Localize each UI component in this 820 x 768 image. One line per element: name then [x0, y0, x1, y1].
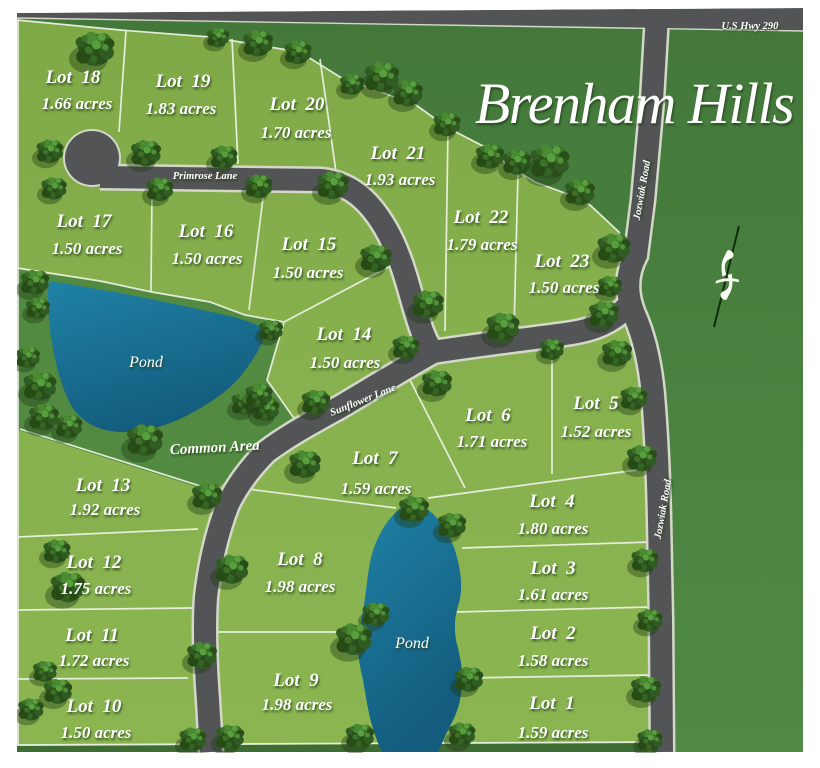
svg-text:U.S Hwy 290: U.S Hwy 290: [722, 21, 780, 32]
svg-text:Lot 3: Lot 3: [529, 558, 575, 579]
svg-text:1.71 acres: 1.71 acres: [457, 432, 528, 451]
svg-text:Lot 14: Lot 14: [316, 324, 372, 345]
svg-text:Lot 10: Lot 10: [66, 696, 122, 717]
svg-text:1.59 acres: 1.59 acres: [341, 479, 412, 498]
svg-text:Lot 16: Lot 16: [178, 221, 234, 242]
svg-text:Lot 7: Lot 7: [351, 448, 399, 469]
svg-text:1.83 acres: 1.83 acres: [146, 99, 217, 118]
svg-text:Pond: Pond: [128, 354, 164, 371]
svg-text:Lot 21: Lot 21: [370, 143, 426, 164]
svg-text:Lot 9: Lot 9: [272, 670, 319, 691]
svg-text:1.75 acres: 1.75 acres: [61, 579, 132, 598]
svg-text:Lot 1: Lot 1: [528, 693, 574, 714]
svg-text:Lot 22: Lot 22: [453, 207, 509, 228]
svg-text:Primrose Lane: Primrose Lane: [173, 171, 238, 182]
svg-text:1.61 acres: 1.61 acres: [518, 585, 589, 604]
svg-text:1.50 acres: 1.50 acres: [273, 263, 344, 282]
svg-text:1.58 acres: 1.58 acres: [518, 651, 589, 670]
svg-text:1.50 acres: 1.50 acres: [52, 239, 123, 258]
svg-text:Lot 13: Lot 13: [75, 475, 131, 496]
svg-text:1.70 acres: 1.70 acres: [261, 123, 332, 142]
svg-text:Lot 19: Lot 19: [155, 71, 211, 92]
svg-text:Lot 17: Lot 17: [56, 211, 113, 232]
svg-text:1.92 acres: 1.92 acres: [70, 500, 141, 519]
svg-text:1.50 acres: 1.50 acres: [172, 249, 243, 268]
svg-text:Lot 15: Lot 15: [281, 234, 337, 255]
svg-text:Lot 4: Lot 4: [528, 491, 574, 512]
svg-text:1.50 acres: 1.50 acres: [61, 723, 132, 742]
svg-text:Lot 12: Lot 12: [66, 552, 122, 573]
svg-text:Brenham Hills: Brenham Hills: [475, 71, 793, 136]
svg-text:Lot 23: Lot 23: [534, 251, 590, 272]
svg-text:1.80 acres: 1.80 acres: [518, 519, 589, 538]
svg-text:1.79 acres: 1.79 acres: [447, 235, 518, 254]
svg-text:1.72 acres: 1.72 acres: [59, 651, 130, 670]
svg-text:1.98 acres: 1.98 acres: [262, 695, 333, 714]
svg-text:1.93 acres: 1.93 acres: [365, 170, 436, 189]
svg-text:1.98 acres: 1.98 acres: [265, 577, 336, 596]
svg-text:Pond: Pond: [394, 635, 430, 652]
svg-text:Lot 8: Lot 8: [276, 549, 323, 570]
svg-text:1.66 acres: 1.66 acres: [42, 94, 113, 113]
svg-text:Lot 5: Lot 5: [572, 393, 619, 414]
svg-text:1.52 acres: 1.52 acres: [561, 422, 632, 441]
svg-text:Lot 11: Lot 11: [64, 625, 119, 646]
svg-text:1.59 acres: 1.59 acres: [518, 723, 589, 742]
svg-text:Lot 6: Lot 6: [464, 405, 511, 426]
svg-text:1.50 acres: 1.50 acres: [310, 353, 381, 372]
svg-text:Lot 18: Lot 18: [45, 67, 101, 88]
svg-text:1.50 acres: 1.50 acres: [529, 278, 600, 297]
svg-text:Lot 20: Lot 20: [269, 94, 325, 115]
svg-text:Lot 2: Lot 2: [529, 623, 576, 644]
